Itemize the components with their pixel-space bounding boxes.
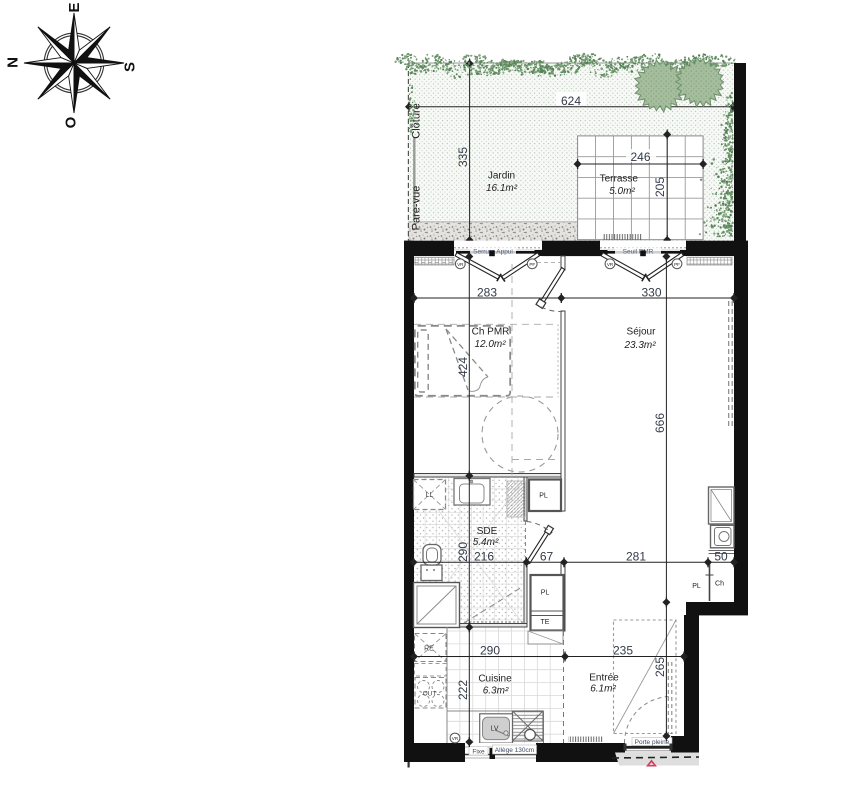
svg-text:Pare-vue: Pare-vue [411,186,423,231]
svg-text:O: O [62,116,79,128]
svg-text:PL: PL [539,493,548,500]
svg-text:283: 283 [477,285,497,299]
svg-text:16.1m²: 16.1m² [486,183,518,194]
svg-text:LV: LV [490,726,498,733]
svg-text:265: 265 [653,657,667,677]
svg-text:Fixe: Fixe [472,748,485,755]
svg-text:Jardin: Jardin [488,171,515,182]
svg-text:VR: VR [607,262,614,267]
svg-text:Terrasse: Terrasse [600,174,639,185]
svg-text:5.0m²: 5.0m² [609,186,635,197]
svg-text:PL: PL [541,590,550,597]
svg-text:S: S [121,62,138,72]
svg-text:290: 290 [456,542,470,562]
svg-text:281: 281 [626,549,646,563]
svg-text:SDE: SDE [477,526,498,537]
svg-text:VR: VR [452,736,459,741]
svg-text:PF: PF [529,262,535,267]
svg-text:6.1m²: 6.1m² [590,684,616,695]
svg-text:246: 246 [630,150,650,164]
svg-text:5.4m²: 5.4m² [473,537,499,548]
svg-text:N: N [4,57,21,68]
svg-text:VR: VR [457,262,464,267]
svg-text:290: 290 [480,644,500,658]
svg-text:PL: PL [692,583,701,590]
svg-text:23.3m²: 23.3m² [623,340,656,351]
svg-text:PF: PF [674,262,680,267]
svg-text:6.3m²: 6.3m² [483,686,509,697]
svg-text:Cuisine: Cuisine [478,674,512,685]
svg-text:666: 666 [653,413,667,433]
svg-text:330: 330 [641,285,661,299]
svg-text:216: 216 [474,550,494,564]
svg-text:222: 222 [456,680,470,700]
svg-text:TE: TE [541,619,550,626]
svg-text:50: 50 [714,549,728,563]
svg-text:235: 235 [613,644,633,658]
svg-text:12.0m²: 12.0m² [474,339,506,350]
svg-text:Seuil PMR: Seuil PMR [623,249,654,256]
svg-text:Ch PMR: Ch PMR [472,327,510,338]
svg-text:335: 335 [456,147,470,167]
svg-text:Allège 130cm: Allège 130cm [495,747,534,754]
svg-text:E: E [66,2,83,12]
svg-text:424: 424 [456,357,470,377]
svg-text:205: 205 [653,177,667,197]
svg-text:LL: LL [426,492,434,499]
svg-text:Porte pleine: Porte pleine [635,739,670,746]
svg-text:624: 624 [561,94,581,108]
svg-text:Séjour: Séjour [627,327,657,338]
svg-text:Entrée: Entrée [589,673,619,684]
svg-text:67: 67 [540,550,554,564]
svg-text:RE: RE [424,646,434,653]
svg-text:Ch: Ch [715,581,724,588]
svg-text:OUT: OUT [423,691,437,698]
